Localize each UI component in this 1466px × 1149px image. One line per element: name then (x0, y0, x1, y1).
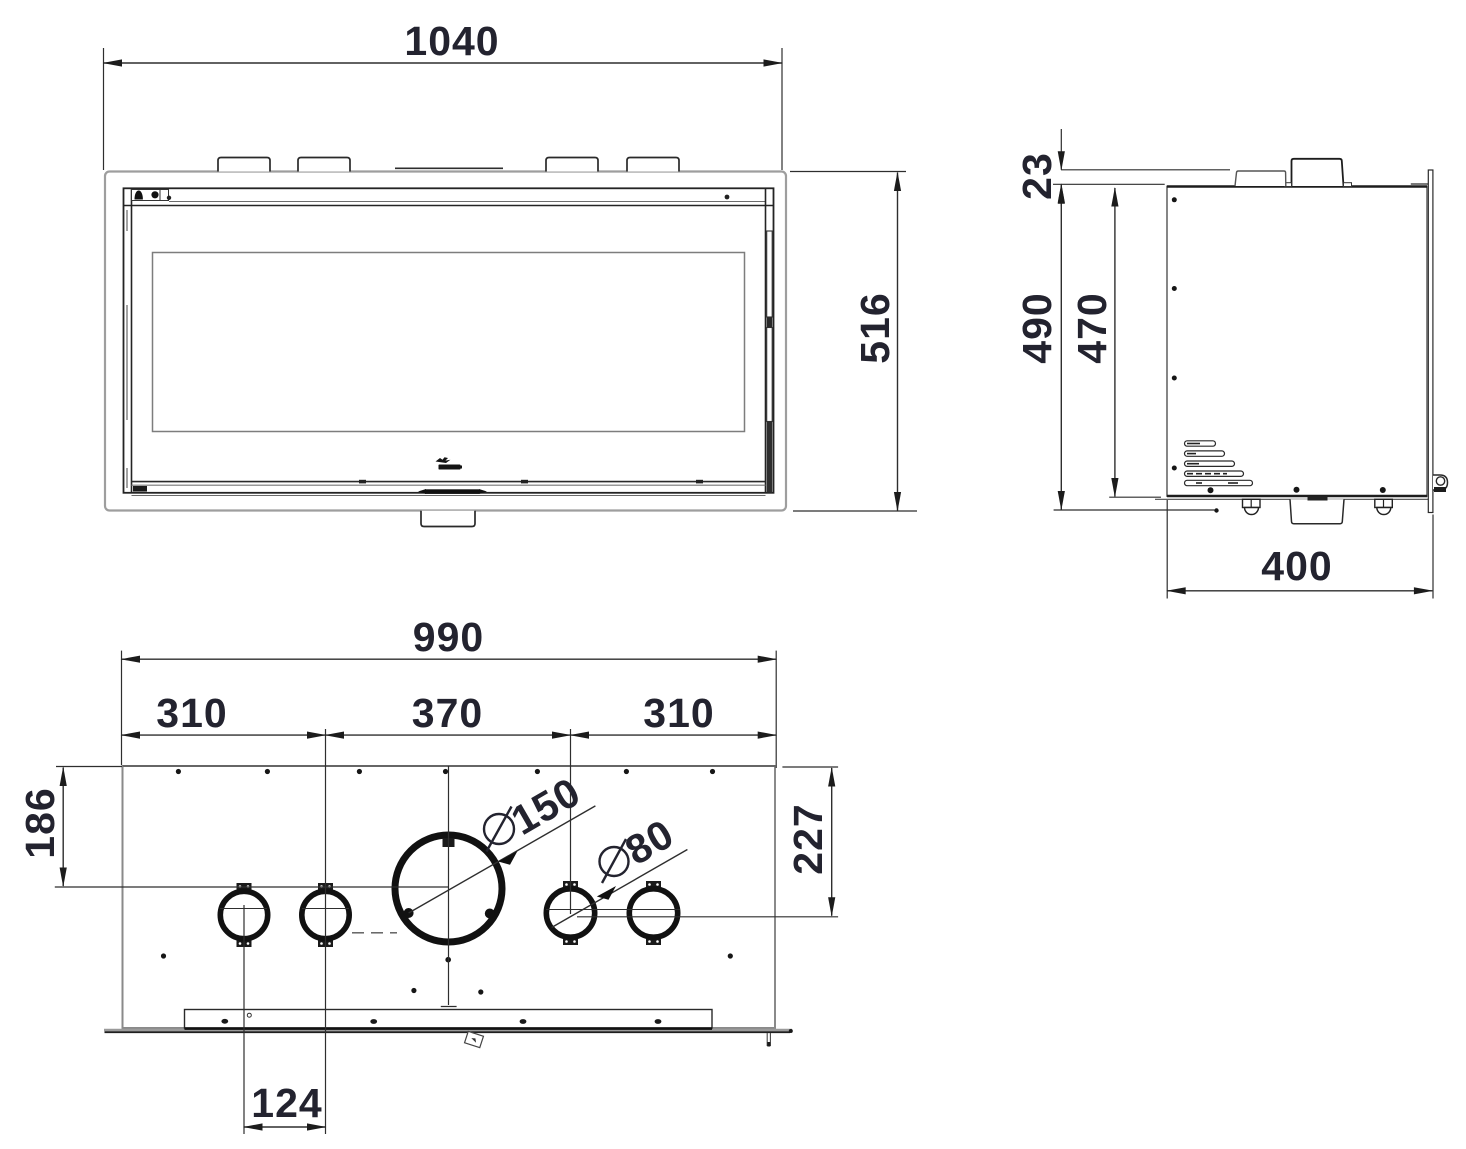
svg-text:186: 186 (17, 787, 63, 858)
svg-text:470: 470 (1069, 292, 1115, 363)
svg-text:227: 227 (785, 803, 831, 874)
svg-text:370: 370 (412, 690, 483, 736)
svg-text:516: 516 (852, 292, 898, 363)
svg-text:400: 400 (1261, 543, 1332, 589)
svg-text:23: 23 (1014, 152, 1060, 200)
svg-text:124: 124 (251, 1080, 322, 1126)
svg-text:310: 310 (156, 690, 227, 736)
svg-text:490: 490 (1014, 292, 1060, 363)
svg-text:990: 990 (413, 614, 484, 660)
svg-text:1040: 1040 (404, 18, 499, 64)
svg-text:310: 310 (643, 690, 714, 736)
